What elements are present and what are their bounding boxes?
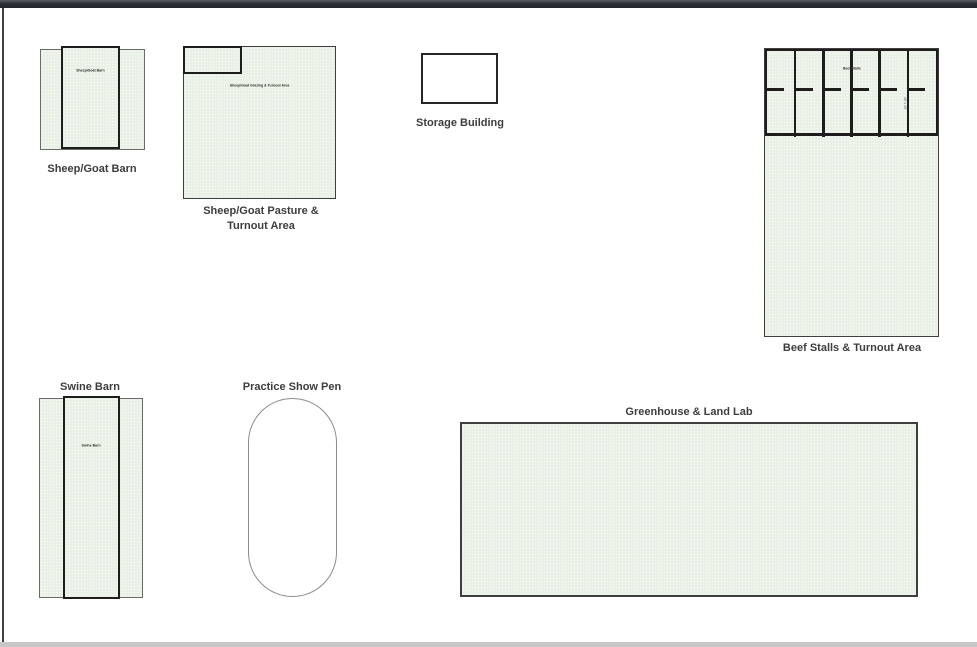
beef-stall-dimension-label: 10' x 20': [903, 97, 907, 110]
beef-stall-gate-fence: [767, 88, 784, 91]
beef-stall-rows: [765, 49, 938, 135]
beef-stall-divider: [850, 51, 853, 137]
beef-stalls-inner-label: Beef Stalls: [843, 67, 861, 71]
beef-stalls-label: Beef Stalls & Turnout Area: [772, 341, 932, 356]
beef-stall-divider: [907, 51, 910, 137]
beef-stalls-turnout-area: Beef Stalls 10' x 20': [764, 48, 939, 337]
sheep-goat-pasture-shed: [183, 46, 242, 74]
sheep-goat-pasture-label: Sheep/Goat Pasture & Turnout Area: [186, 204, 336, 234]
window-top-edge: [0, 0, 977, 8]
beef-stall-gate-fence: [880, 88, 897, 91]
storage-building-label: Storage Building: [395, 116, 525, 131]
swine-barn-building: Swine Barn: [63, 396, 120, 599]
beef-stall-divider: [822, 51, 825, 137]
swine-barn-title: Swine Barn: [25, 380, 155, 395]
greenhouse-land-lab-area: [460, 422, 918, 597]
sheep-goat-pasture-label-line1: Sheep/Goat Pasture &: [203, 205, 319, 217]
swine-barn-inner-label: Swine Barn: [82, 444, 101, 448]
practice-show-pen: [248, 398, 337, 597]
beef-stall-divider: [794, 51, 797, 137]
beef-stall-gate-fence: [795, 88, 812, 91]
beef-stall-divider: [878, 51, 881, 137]
greenhouse-land-lab-title: Greenhouse & Land Lab: [609, 405, 769, 420]
sheep-goat-pasture-inner-label: Sheep/Goat Grazing & Turnout Area: [230, 84, 290, 88]
page-left-edge: [2, 8, 4, 642]
beef-stall-gate-fence: [908, 88, 925, 91]
beef-stall-rows-bottom-fence: [765, 133, 938, 136]
window-bottom-edge: [0, 642, 977, 647]
beef-stall-gate-fence: [823, 88, 840, 91]
facility-map-page: Sheep/Goat Barn Sheep/Goat Barn Sheep/Go…: [0, 0, 977, 647]
sheep-goat-barn-label: Sheep/Goat Barn: [27, 162, 157, 177]
beef-stall-gate-fence: [852, 88, 869, 91]
storage-building: [421, 53, 498, 104]
sheep-goat-barn-building: Sheep/Goat Barn: [61, 46, 120, 149]
sheep-goat-pasture-label-line2: Turnout Area: [227, 220, 295, 232]
practice-show-pen-title: Practice Show Pen: [227, 380, 357, 395]
sheep-goat-barn-inner-label: Sheep/Goat Barn: [76, 69, 104, 73]
